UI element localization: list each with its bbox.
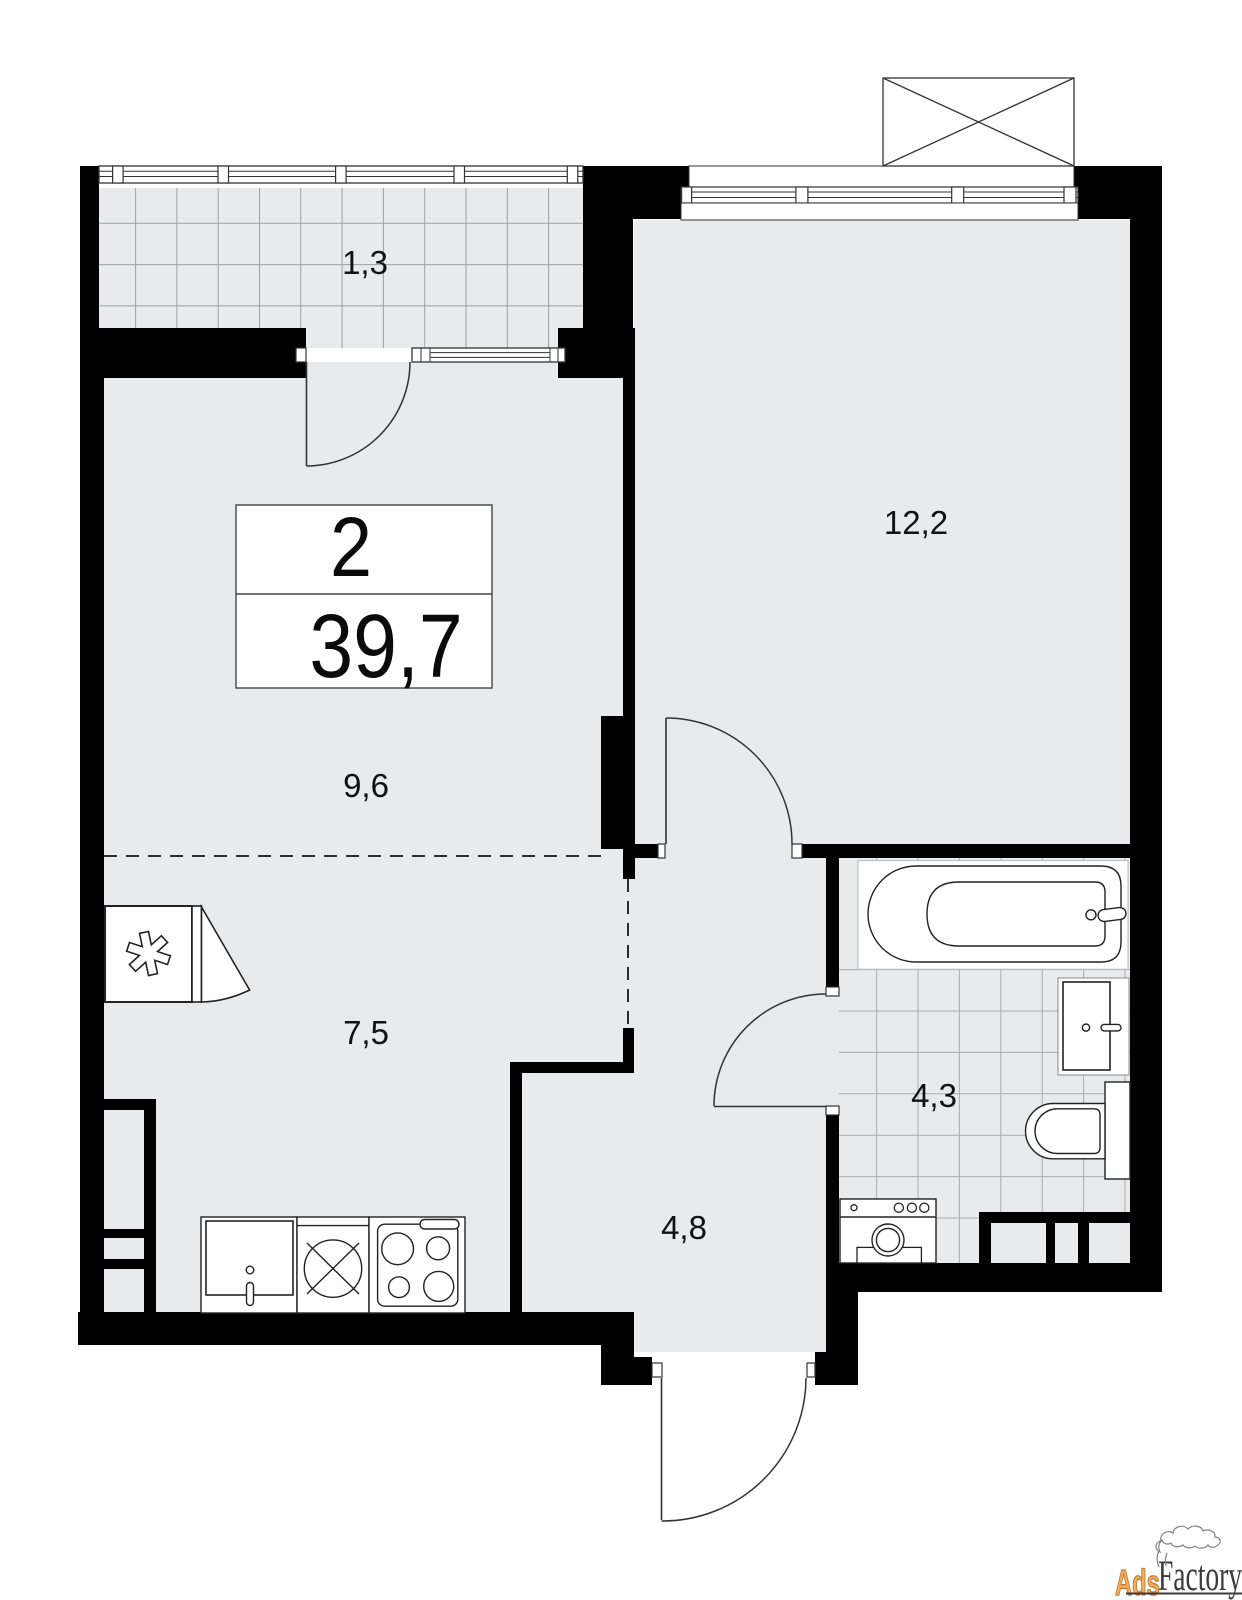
- svg-text:2: 2: [330, 500, 372, 594]
- svg-text:1,3: 1,3: [342, 244, 388, 281]
- svg-text:9,6: 9,6: [343, 767, 389, 804]
- svg-text:39,7: 39,7: [309, 595, 462, 696]
- svg-text:4,3: 4,3: [911, 1077, 957, 1114]
- svg-text:7,5: 7,5: [343, 1014, 389, 1051]
- svg-text:4,8: 4,8: [661, 1209, 707, 1246]
- svg-text:Factory: Factory: [1158, 1552, 1242, 1600]
- svg-text:12,2: 12,2: [884, 504, 948, 541]
